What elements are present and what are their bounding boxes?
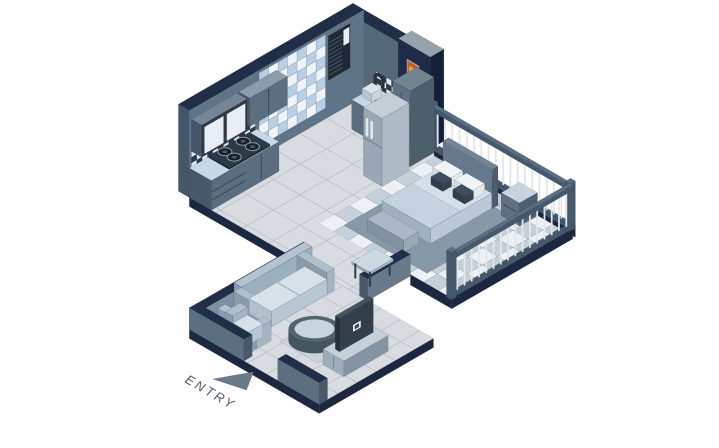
fridge <box>363 92 409 186</box>
floorplan-canvas: ENTRY <box>0 0 719 448</box>
apartment-floorplan-illustration: ENTRY <box>0 0 719 448</box>
entry-marker: ENTRY <box>183 372 254 413</box>
